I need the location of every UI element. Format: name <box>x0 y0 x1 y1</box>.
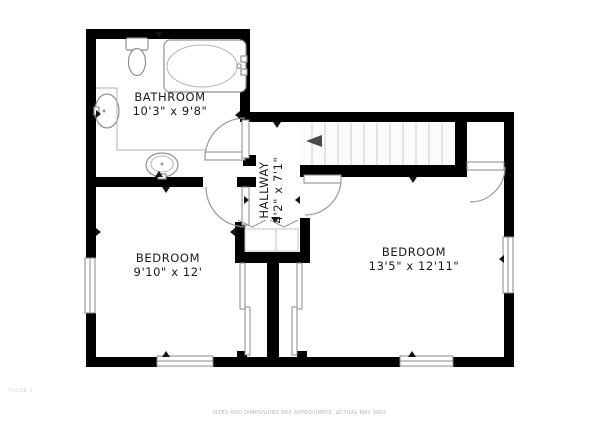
left-bedroom-name: BEDROOM <box>134 251 203 265</box>
window-right-wall <box>503 237 513 293</box>
bathroom-label: BATHROOM 10'3" x 9'8" <box>133 90 208 118</box>
floor-plan: BATHROOM 10'3" x 9'8" HALLWAY 4'2" x 7'1… <box>0 0 600 424</box>
window-bottom-right-bedroom <box>400 356 453 366</box>
hallway-label: HALLWAY 4'2" x 7'1" <box>257 157 285 224</box>
window-left-wall <box>85 258 95 313</box>
hallway-dims: 4'2" x 7'1" <box>271 157 285 224</box>
corner-note: FLOOR 2 <box>9 388 33 394</box>
left-bedroom-label: BEDROOM 9'10" x 12' <box>134 251 203 279</box>
pedestal-sink-icon <box>146 153 178 179</box>
staircase <box>300 123 456 165</box>
window-bottom-left-bedroom <box>157 356 213 366</box>
left-bedroom-dims: 9'10" x 12' <box>134 265 203 279</box>
left-closet-sliding-doors <box>240 263 250 355</box>
floor-plan-drawing <box>0 0 600 424</box>
right-closet-sliding-doors <box>292 263 302 355</box>
bathroom-door <box>205 118 249 160</box>
bathroom-dims: 10'3" x 9'8" <box>133 104 208 118</box>
left-bedroom-door <box>206 187 249 227</box>
right-bedroom-label: BEDROOM 13'5" x 12'11" <box>369 245 460 273</box>
vanity-sink-icon <box>94 94 119 128</box>
bathroom-name: BATHROOM <box>133 90 208 104</box>
bathtub-icon <box>164 40 247 92</box>
hallway-name: HALLWAY <box>257 157 271 224</box>
right-bedroom-name: BEDROOM <box>369 245 460 259</box>
hallway-closet-bifold-doors <box>238 220 298 251</box>
toilet-icon <box>126 38 148 76</box>
right-bedroom-dims: 13'5" x 12'11" <box>369 259 460 273</box>
top-right-closet-door <box>467 162 505 202</box>
right-bedroom-door <box>304 175 341 215</box>
footer-disclaimer: SIZES AND DIMENSIONS ARE APPROXIMATE, AC… <box>213 410 388 416</box>
